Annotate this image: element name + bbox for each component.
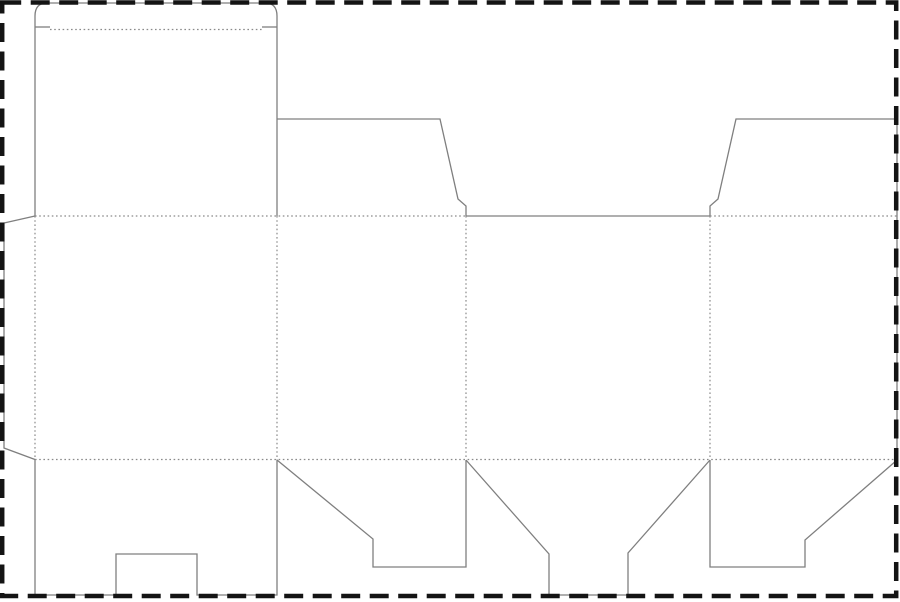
- cut-lines-layer: [4, 3, 897, 595]
- box-dieline-drawing: [0, 0, 900, 602]
- glue-flap-outline: [4, 216, 35, 460]
- top-dust-flap-right: [710, 119, 897, 460]
- bottom-flap-notched: [35, 460, 277, 596]
- tuck-flap-and-lid-outline: [35, 3, 277, 216]
- fold-lines-layer: [35, 30, 897, 460]
- bottom-flap-step-left: [277, 460, 466, 567]
- dieline-canvas: [0, 0, 900, 602]
- bottom-flap-step-right: [710, 460, 897, 567]
- top-dust-flap-left: [277, 119, 466, 216]
- bottom-flap-snaplock: [466, 460, 710, 595]
- dashed-bleed-border: [2, 3, 896, 597]
